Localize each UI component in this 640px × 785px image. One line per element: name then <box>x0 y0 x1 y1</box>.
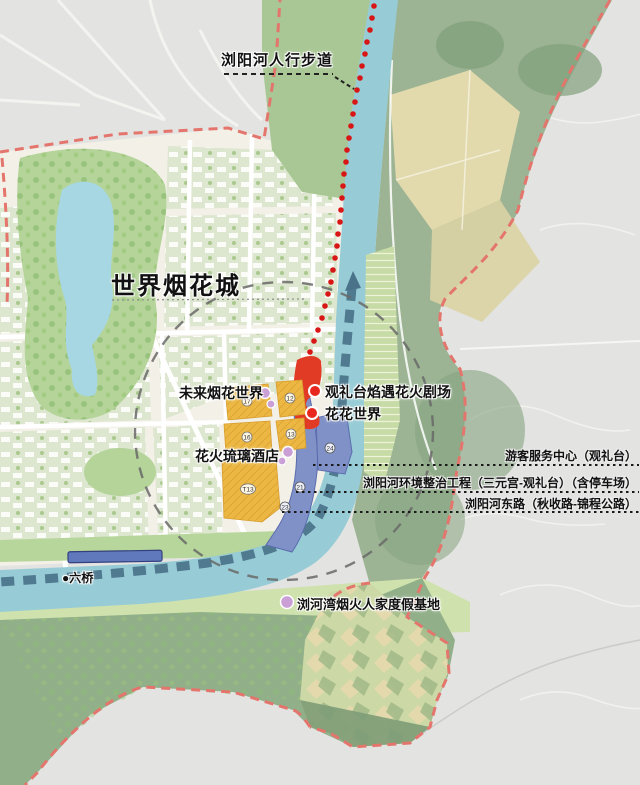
parcel-number: T13 <box>242 487 254 494</box>
theater-marker <box>309 385 321 397</box>
callout-river-remediation: 浏阳河环境整治工程（三元宫-观礼台）（含停车场） <box>363 474 637 491</box>
label-flower-world: 花花世界 <box>325 404 381 424</box>
master-plan-map: 17 12 16 13 T13 24 21 23 <box>0 0 640 785</box>
map-artwork: 17 12 16 13 T13 24 21 23 <box>0 0 640 785</box>
label-six-bridge: ●六桥 <box>62 569 93 586</box>
forest-patch <box>518 44 602 96</box>
label-viewing-platform-theater: 观礼台焰遇花火剧场 <box>325 382 451 402</box>
hotel-marker <box>283 447 294 458</box>
hotel-marker-small <box>278 457 286 465</box>
bridge-six <box>68 550 162 563</box>
callout-east-road: 浏阳河东路（秋收路-锦程公路） <box>465 495 637 512</box>
parcel-number: 13 <box>287 432 295 439</box>
parcel-number: 24 <box>326 446 334 453</box>
label-fireworks-hotel: 花火琉璃酒店 <box>195 446 279 466</box>
future-world-marker-small <box>267 400 275 408</box>
callout-visitor-center: 游客服务中心（观礼台） <box>505 447 637 464</box>
green-patch <box>84 448 156 496</box>
label-future-fireworks-world: 未来烟花世界 <box>179 383 263 403</box>
label-river-walkway: 浏阳河人行步道 <box>221 49 333 70</box>
parcel-number: 16 <box>243 435 251 442</box>
flower-world-marker <box>306 407 318 419</box>
parcel-number: 12 <box>286 396 294 403</box>
resort-marker <box>281 596 294 609</box>
label-resort-base: 浏河湾烟火人家度假基地 <box>297 594 440 613</box>
label-world-fireworks-city: 世界烟花城 <box>111 266 241 301</box>
forest-patch <box>436 21 504 69</box>
parcel-number: 21 <box>296 485 304 492</box>
parcel-number: 23 <box>281 505 289 512</box>
